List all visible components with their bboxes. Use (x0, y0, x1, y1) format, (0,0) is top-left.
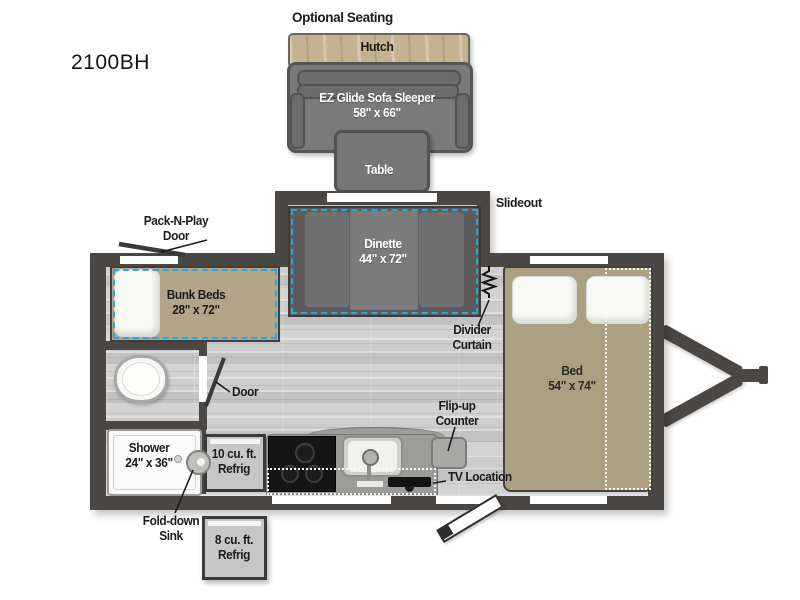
entry-door-cap (438, 524, 454, 540)
flip-up-counter-label: Flip-up Counter (457, 399, 502, 428)
tongue-coupler (735, 369, 762, 382)
fold-down-sink-drain (197, 458, 205, 466)
bunk-beds-label: Bunk Beds 28" x 72" (196, 288, 258, 317)
tongue-bar-lower (658, 373, 743, 428)
bed-pillow-right (586, 276, 650, 324)
model-number: 2100BH (71, 51, 150, 75)
burner-top (295, 443, 315, 463)
dinette-label: Dinette 44" x 72" (383, 237, 433, 266)
dinette-table-stowed (334, 130, 430, 193)
toilet (114, 355, 168, 403)
faucet-base-bar (356, 480, 384, 488)
packnplay-door-opening (120, 256, 178, 264)
fold-down-sink-label: Fold-down Sink (171, 514, 231, 543)
optional-seating-label: Optional Seating (292, 10, 393, 26)
toilet-bowl (122, 362, 160, 396)
table-label: Table (379, 163, 409, 178)
divider-curtain-label: Divider Curtain (472, 323, 513, 352)
floorplan-page: 2100BH Optional Seating Hutch EZ Glide S… (0, 0, 800, 600)
hutch-label: Hutch (377, 39, 412, 54)
shower-control-dot (174, 455, 182, 463)
refrigerator-8-label: 8 cu. ft. Refrig (234, 533, 274, 562)
fold-down-sink (186, 450, 211, 475)
refrigerator-10-label: 10 cu. ft. Refrig (234, 447, 281, 476)
slideout-window (327, 193, 437, 202)
bunk-pillow (114, 269, 160, 337)
tongue-coupler-tip (759, 366, 768, 384)
bed-pillow-left (512, 276, 577, 324)
interior-door-label: Door (232, 385, 258, 400)
kitchen-window (272, 496, 391, 504)
faucet-knob (362, 449, 379, 466)
bed-label: Bed 54" x 74" (572, 364, 622, 393)
bedroom-top-window (530, 256, 608, 264)
tv-location-label: TV Location (448, 470, 512, 485)
flip-up-counter (431, 437, 467, 469)
burner-left (281, 465, 299, 483)
refrigerator-10-handle (210, 439, 260, 444)
tongue-bar-upper (658, 324, 743, 379)
bath-door-opening (199, 356, 207, 402)
bedroom-bottom-window (530, 496, 607, 504)
packnplay-label: Pack-N-Play Door (176, 214, 244, 243)
slideout-label: Slideout (496, 195, 542, 210)
bath-wall-top (106, 341, 207, 350)
burner-right (305, 465, 323, 483)
sofa-label: EZ Glide Sofa Sleeper 58" x 66" (377, 91, 499, 120)
sofa-armrest-left (290, 93, 305, 149)
dinette-bench-left (305, 212, 350, 307)
